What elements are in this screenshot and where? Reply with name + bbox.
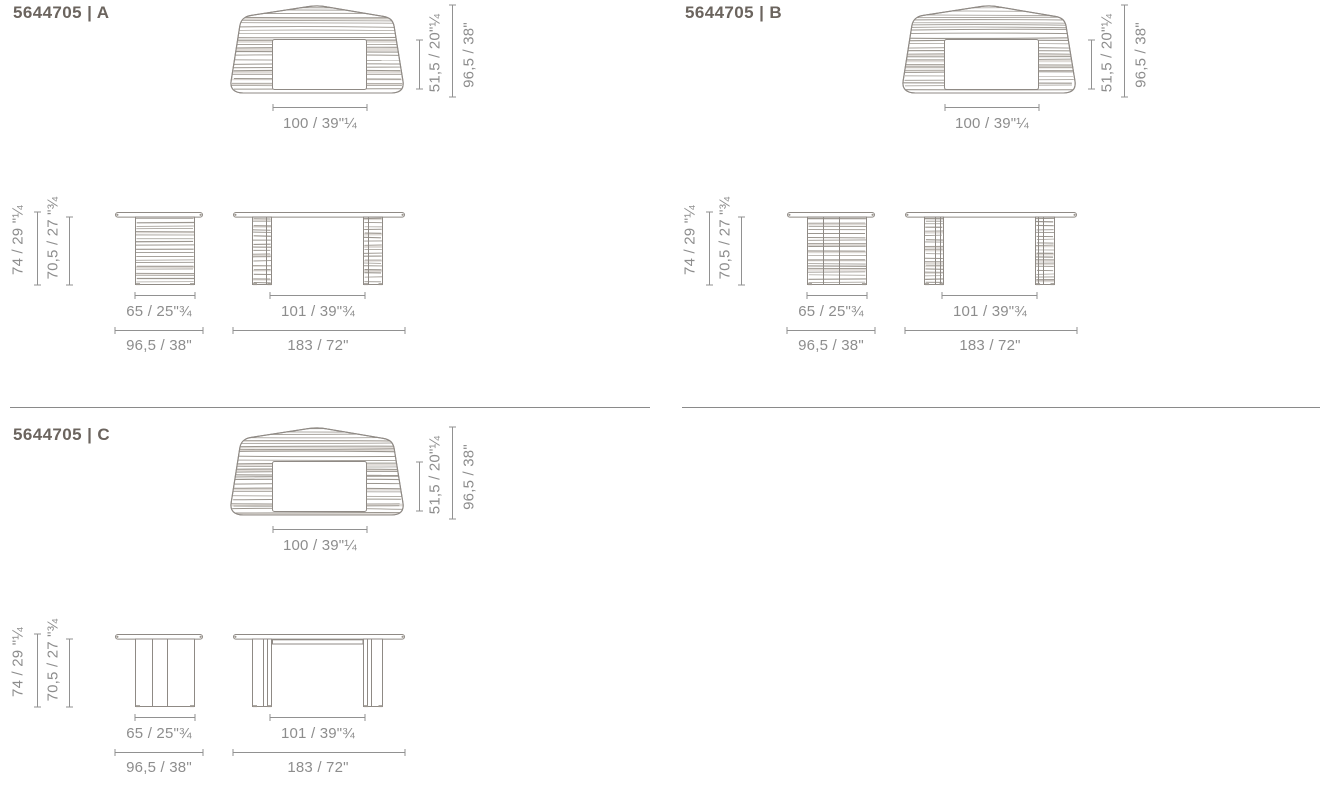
dim-top-overall-depth: 96,5 / 38": [461, 22, 478, 88]
dim-front-height-total: 74 / 29 "¼: [10, 627, 27, 697]
technical-drawing-variant-b: [672, 0, 1329, 380]
dim-top-inner-width: 100 / 39"¼: [283, 537, 357, 554]
panel-variant-a: 5644705 | A 51,5 / 20"¼ 96,5 / 38" 100 /…: [0, 0, 664, 380]
dimension-sheet: { "document": { "background": "#ffffff" …: [0, 0, 1329, 788]
panel-variant-c: 5644705 | C 51,5 / 20"¼ 96,5 / 38" 100 /…: [0, 422, 664, 802]
dim-top-inner-depth: 51,5 / 20"¼: [427, 436, 444, 514]
dim-top-inner-depth: 51,5 / 20"¼: [1099, 14, 1116, 92]
section-divider-left: [10, 407, 650, 408]
dim-side-leg-span: 101 / 39"¾: [953, 303, 1027, 320]
dim-front-base-width: 65 / 25"¾: [798, 303, 864, 320]
product-code-title: 5644705 | B: [685, 3, 782, 23]
dim-side-top-length: 183 / 72": [287, 337, 348, 354]
dim-front-height-total: 74 / 29 "¼: [10, 205, 27, 275]
dim-front-top-width: 96,5 / 38": [126, 337, 192, 354]
dim-front-height-clearance: 70,5 / 27 "¾: [45, 619, 62, 702]
dim-side-top-length: 183 / 72": [959, 337, 1020, 354]
technical-drawing-variant-c: [0, 422, 664, 802]
dim-side-leg-span: 101 / 39"¾: [281, 303, 355, 320]
dim-front-height-clearance: 70,5 / 27 "¾: [45, 197, 62, 280]
dim-top-inner-width: 100 / 39"¼: [955, 115, 1029, 132]
product-code-title: 5644705 | C: [13, 425, 110, 445]
technical-drawing-variant-a: [0, 0, 664, 380]
dim-top-overall-depth: 96,5 / 38": [461, 444, 478, 510]
dim-side-top-length: 183 / 72": [287, 759, 348, 776]
dim-front-base-width: 65 / 25"¾: [126, 303, 192, 320]
dim-top-inner-width: 100 / 39"¼: [283, 115, 357, 132]
dim-front-base-width: 65 / 25"¾: [126, 725, 192, 742]
dim-front-height-clearance: 70,5 / 27 "¾: [717, 197, 734, 280]
product-code-title: 5644705 | A: [13, 3, 109, 23]
dim-front-top-width: 96,5 / 38": [126, 759, 192, 776]
section-divider-right: [682, 407, 1320, 408]
dim-front-height-total: 74 / 29 "¼: [682, 205, 699, 275]
dim-top-inner-depth: 51,5 / 20"¼: [427, 14, 444, 92]
dim-front-top-width: 96,5 / 38": [798, 337, 864, 354]
dim-side-leg-span: 101 / 39"¾: [281, 725, 355, 742]
dim-top-overall-depth: 96,5 / 38": [1133, 22, 1150, 88]
panel-variant-b: 5644705 | B 51,5 / 20"¼ 96,5 / 38" 100 /…: [672, 0, 1329, 380]
